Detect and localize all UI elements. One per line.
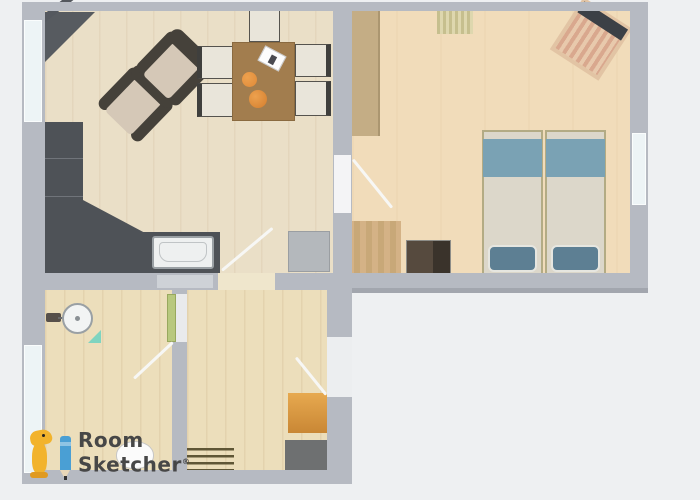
orange-mat bbox=[288, 393, 330, 433]
corner-cabinet bbox=[45, 12, 95, 62]
dining-chair-left-1 bbox=[197, 46, 233, 79]
floor-plan: Room Sketcher® bbox=[0, 0, 700, 500]
wall-segment-light bbox=[157, 275, 213, 288]
wood-mat bbox=[348, 221, 401, 274]
roomsketcher-mascot-icon bbox=[28, 428, 62, 484]
single-bed-2 bbox=[545, 130, 606, 277]
logo-line-2: Sketcher® bbox=[78, 451, 190, 476]
dining-chair-left-2 bbox=[197, 83, 233, 117]
nightstand bbox=[406, 240, 451, 276]
logo-text: Room Sketcher® bbox=[78, 430, 190, 476]
kitchen-counter-left bbox=[45, 122, 83, 234]
orange-1 bbox=[242, 72, 257, 87]
wall-living-bedroom bbox=[333, 2, 352, 293]
pencil-icon bbox=[60, 436, 71, 470]
window-bedroom bbox=[632, 133, 646, 205]
logo-line-1: Room bbox=[78, 430, 190, 451]
wardrobe bbox=[352, 8, 380, 136]
teal-shelf bbox=[88, 330, 101, 343]
dining-chair-right-1 bbox=[295, 44, 331, 77]
single-bed-1 bbox=[482, 130, 543, 277]
bathroom-door-leaf bbox=[167, 294, 176, 342]
stove-icon bbox=[288, 231, 330, 272]
bedroom-striped-rug bbox=[437, 8, 473, 34]
dining-chair-right-2 bbox=[295, 81, 331, 116]
bedroom-door-opening bbox=[334, 155, 351, 213]
registered-mark: ® bbox=[182, 457, 191, 466]
window-living bbox=[24, 20, 42, 122]
wall-bedroom-bottom bbox=[333, 273, 648, 293]
living-hall-door-opening bbox=[218, 273, 275, 290]
dark-gray-mat bbox=[285, 440, 331, 470]
roomsketcher-logo: Room Sketcher® bbox=[28, 420, 198, 488]
kitchen-counter-corner bbox=[83, 200, 147, 234]
orange-2 bbox=[249, 90, 267, 108]
entrance-door-opening bbox=[327, 337, 352, 397]
kitchen-sink bbox=[152, 236, 214, 269]
